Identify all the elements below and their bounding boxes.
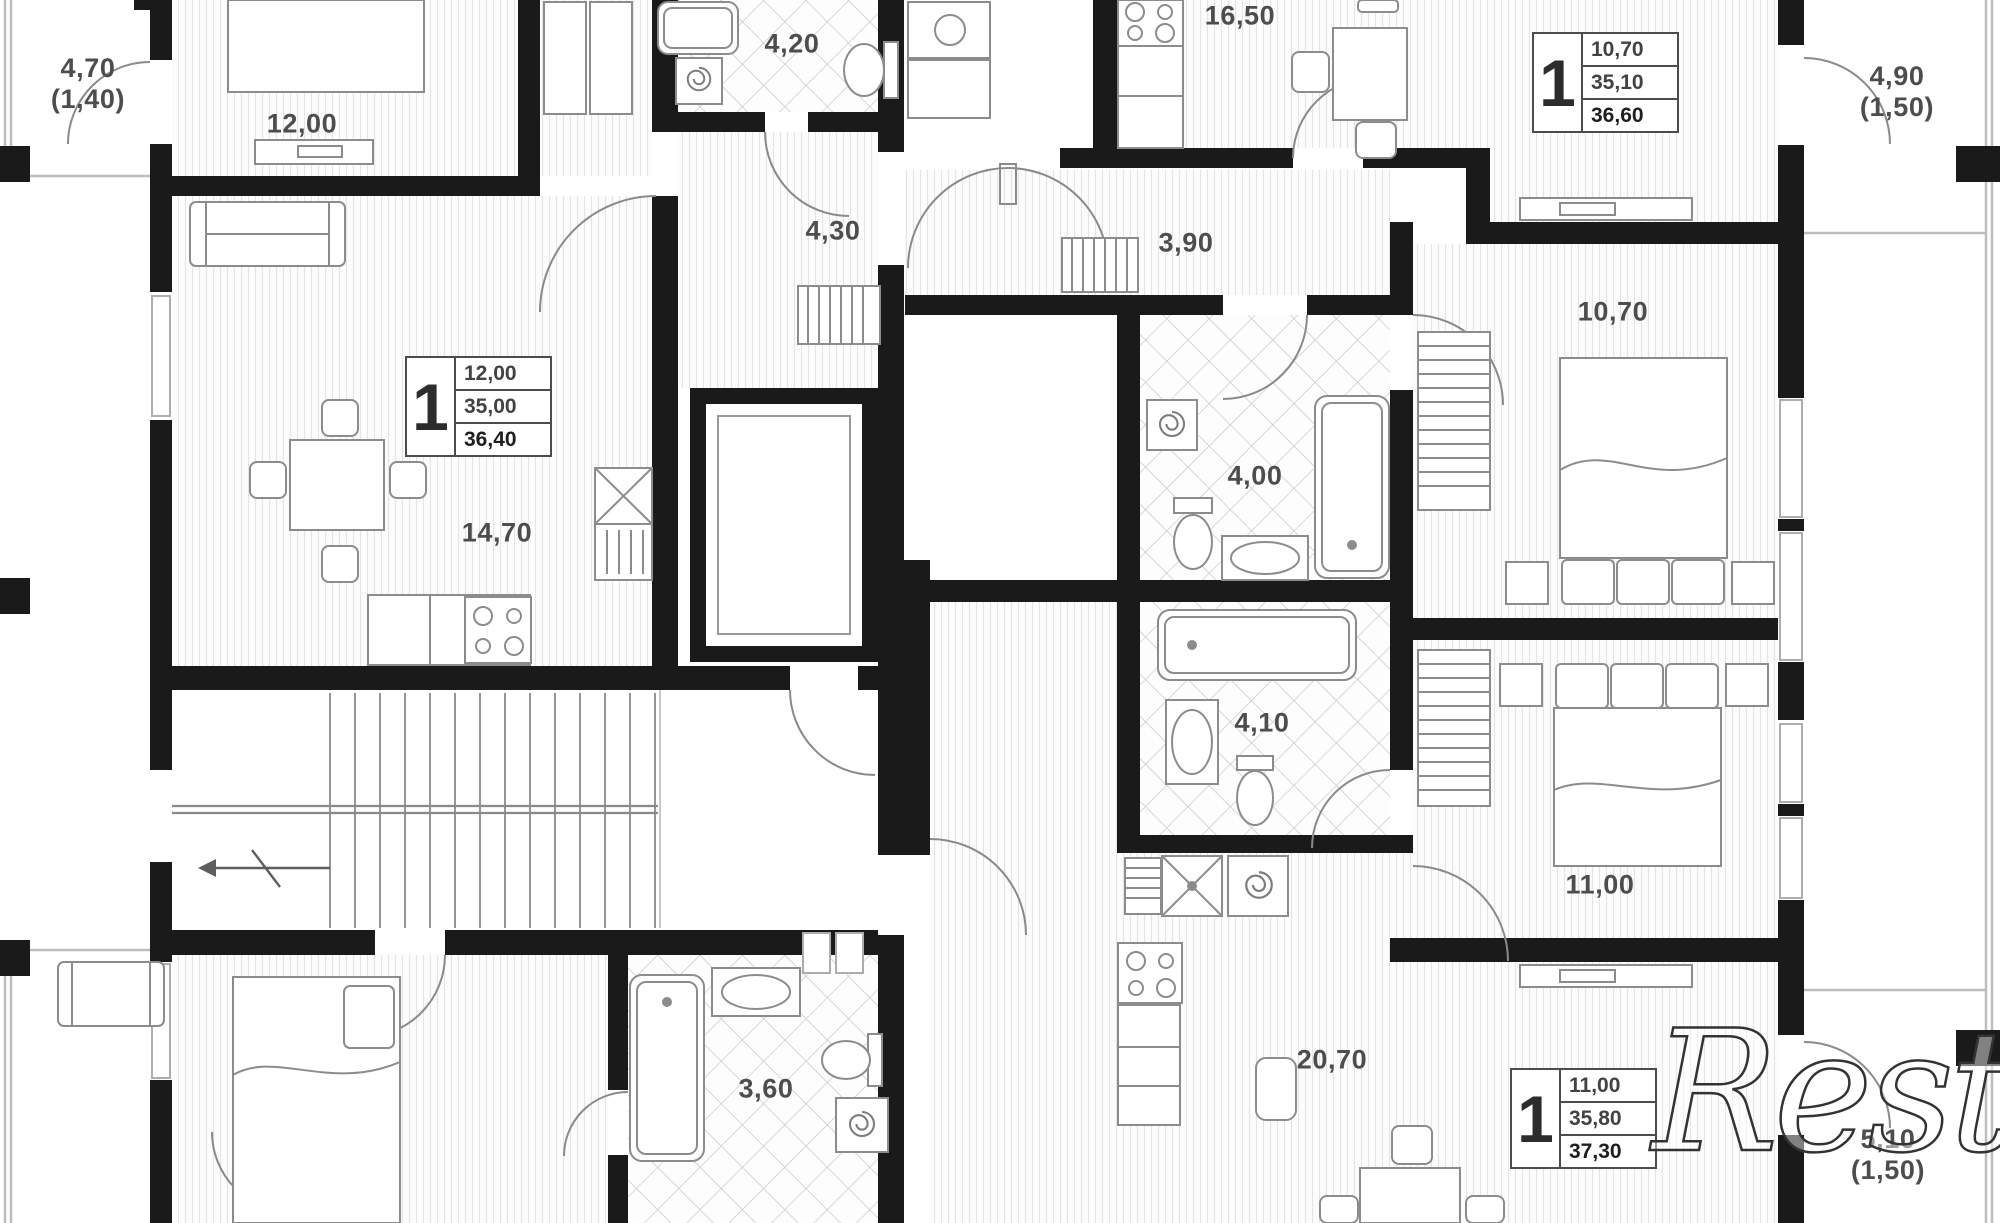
sink-bathroom-410 <box>1166 700 1218 784</box>
label-bedroom-right-upper: 10,70 <box>1578 297 1649 328</box>
balcony-area-value: 4,70 <box>61 53 116 83</box>
toilet-bathroom-410 <box>1237 756 1273 825</box>
toilet-bathroom-400 <box>1174 498 1212 569</box>
apartment-room-area: 12,00 <box>456 358 550 391</box>
apartment-card-top-right: 1 10,70 35,10 36,60 <box>1532 32 1679 133</box>
tv-console-2070 <box>1520 965 1692 987</box>
kitchen-counter-2070 <box>1118 1005 1180 1125</box>
elevator-shaft <box>690 388 878 662</box>
apartment-living-area: 35,80 <box>1561 1103 1655 1136</box>
apartment-rooms-count: 1 <box>407 358 456 455</box>
kitchen-sink-2070 <box>1125 856 1222 916</box>
label-room-12: 12,00 <box>267 109 338 140</box>
label-kitchen-living-right: 16,50 <box>1205 1 1276 32</box>
apartment-card-left: 1 12,00 35,00 36,40 <box>405 356 552 457</box>
label-bathroom-bottom: 3,60 <box>739 1074 794 1105</box>
label-bathroom-right-upper: 4,00 <box>1228 461 1283 492</box>
label-bathroom-top: 4,20 <box>765 29 820 60</box>
washing-machine-bathroom-400 <box>1147 400 1197 450</box>
wardrobe-bedroom-1100 <box>1418 650 1490 806</box>
apartment-living-area: 35,00 <box>456 391 550 424</box>
apartment-living-area: 35,10 <box>1583 67 1677 100</box>
kitchen-sink-left <box>595 468 652 580</box>
radiator-hall-390 <box>1062 238 1138 292</box>
label-bedroom-right-lower: 11,00 <box>1565 870 1634 901</box>
bathtub-bathroom-410 <box>1158 610 1356 680</box>
apartment-total-area: 37,30 <box>1561 1136 1655 1167</box>
stove-2070 <box>1118 943 1182 1003</box>
apartment-total-area: 36,40 <box>456 424 550 455</box>
sink-bathroom-400 <box>1222 536 1308 580</box>
bathtub-bathroom-360 <box>630 975 704 1161</box>
balcony-reduced-value: (1,50) <box>1860 92 1934 122</box>
toilet-bathroom-420 <box>844 42 898 98</box>
apartment-room-area: 10,70 <box>1583 34 1677 67</box>
label-bathroom-right-lower: 4,10 <box>1235 708 1290 739</box>
apartment-card-bottom-right: 1 11,00 35,80 37,30 <box>1510 1068 1657 1169</box>
apartment-total-area: 36,60 <box>1583 100 1677 131</box>
stove-right <box>1118 0 1183 46</box>
apartment-rooms-count: 1 <box>1534 34 1583 131</box>
label-hallway-right: 3,90 <box>1159 228 1214 259</box>
tv-console-1650 <box>1520 198 1692 220</box>
stove-left <box>465 597 531 663</box>
balcony-reduced-value: (1,40) <box>51 84 125 114</box>
label-balcony-top-left: 4,70(1,40) <box>51 53 125 115</box>
sofa-living-left <box>190 202 345 266</box>
sink-bathroom-360 <box>712 968 800 1016</box>
washing-machine-2070 <box>1228 856 1288 916</box>
watermark-logo: Restate <box>1652 1008 2000 1176</box>
washing-machine-bathroom-360 <box>836 1098 888 1152</box>
kitchen-counter-right <box>1118 46 1183 148</box>
balcony-area-value: 4,90 <box>1870 61 1925 91</box>
bathtub-bathroom-400 <box>1315 396 1389 578</box>
kitchen-cabinets-right <box>908 2 990 118</box>
floor-plan: 4,70(1,40) 12,00 4,20 4,30 16,50 3,90 4,… <box>0 0 2000 1223</box>
apartment-room-area: 11,00 <box>1561 1070 1655 1103</box>
bathtub-bathroom-420 <box>658 2 738 54</box>
apartment-rooms-count: 1 <box>1512 1070 1561 1167</box>
label-hallway-left: 4,30 <box>806 216 861 247</box>
wardrobe-bedroom-1070 <box>1418 332 1490 510</box>
tv-console-room12 <box>255 140 373 164</box>
washing-machine-bathroom-420 <box>676 58 722 104</box>
bed-bottom-left <box>233 977 400 1223</box>
sofa-balcony-bottom-left <box>58 962 164 1026</box>
bed-room12 <box>228 0 424 92</box>
staircase <box>172 690 660 928</box>
label-balcony-top-right: 4,90(1,50) <box>1860 61 1934 123</box>
chair-2070 <box>1256 1058 1296 1120</box>
label-living-bottom-right: 20,70 <box>1297 1045 1368 1076</box>
radiator-corridor <box>798 286 880 344</box>
label-kitchen-living-left: 14,70 <box>462 518 533 549</box>
